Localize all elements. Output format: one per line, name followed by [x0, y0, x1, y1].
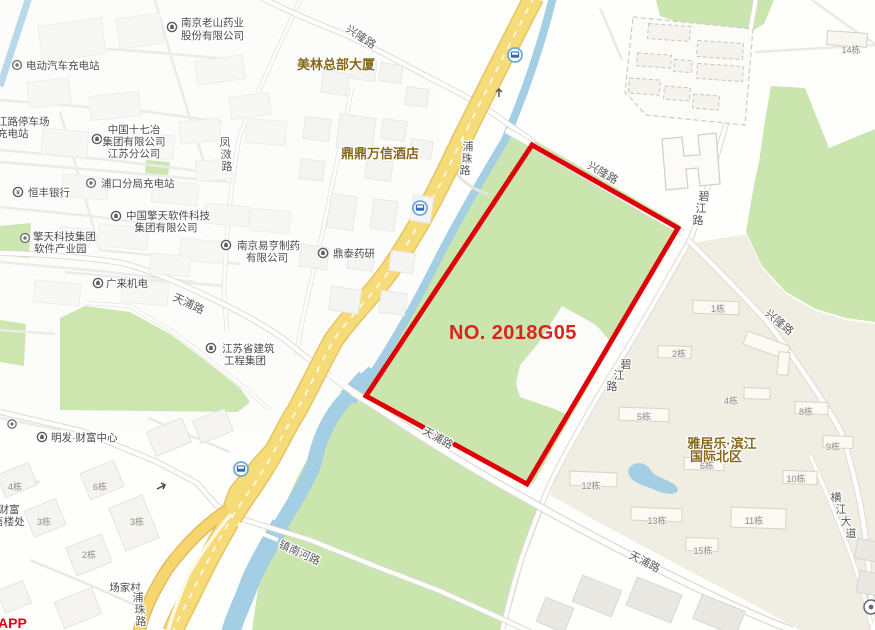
svg-text:浦口分局充电站: 浦口分局充电站 [101, 177, 175, 190]
svg-text:5栋: 5栋 [637, 411, 651, 422]
svg-text:充电站: 充电站 [0, 127, 29, 140]
svg-text:软件产业园: 软件产业园 [34, 242, 87, 255]
svg-text:集团有限公司: 集团有限公司 [135, 221, 198, 234]
svg-text:擎天科技集团: 擎天科技集团 [33, 230, 96, 243]
svg-text:鼎鼎万信酒店: 鼎鼎万信酒店 [341, 146, 419, 161]
svg-text:4栋: 4栋 [724, 395, 738, 406]
svg-text:6栋: 6栋 [700, 460, 714, 471]
svg-text:1栋: 1栋 [711, 303, 725, 314]
svg-text:江路停车场: 江路停车场 [0, 115, 50, 128]
svg-text:江苏省建筑: 江苏省建筑 [222, 342, 275, 355]
svg-text:15栋: 15栋 [693, 545, 712, 556]
svg-text:13栋: 13栋 [647, 515, 666, 526]
svg-text:售楼处: 售楼处 [0, 515, 25, 528]
svg-text:有限公司: 有限公司 [246, 251, 288, 264]
svg-text:9栋: 9栋 [826, 441, 840, 452]
svg-text:美林总部大厦: 美林总部大厦 [297, 57, 376, 72]
svg-text:3栋: 3栋 [37, 516, 51, 527]
svg-text:恒丰银行: 恒丰银行 [28, 186, 70, 199]
svg-text:3栋: 3栋 [130, 516, 144, 527]
svg-text:广来机电: 广来机电 [106, 277, 148, 290]
svg-text:6栋: 6栋 [93, 481, 107, 492]
svg-text:2栋: 2栋 [672, 348, 686, 359]
svg-text:11栋: 11栋 [745, 515, 763, 526]
svg-text:4栋: 4栋 [8, 481, 22, 492]
svg-text:国际北区: 国际北区 [690, 449, 742, 464]
svg-text:8栋: 8栋 [799, 406, 813, 417]
svg-text:鼎泰药研: 鼎泰药研 [333, 247, 375, 260]
svg-text:集团有限公司: 集团有限公司 [103, 135, 166, 148]
svg-text:工程集团: 工程集团 [224, 354, 266, 367]
svg-text:2栋: 2栋 [82, 549, 96, 560]
svg-text:电动汽车充电站: 电动汽车充电站 [26, 59, 100, 72]
svg-text:14栋: 14栋 [841, 44, 860, 55]
svg-text:股份有限公司: 股份有限公司 [181, 29, 244, 42]
svg-text:财富: 财富 [0, 503, 20, 516]
svg-text:12栋: 12栋 [581, 480, 600, 491]
svg-text:江苏分公司: 江苏分公司 [108, 147, 161, 160]
svg-text:南京老山药业: 南京老山药业 [181, 16, 244, 29]
svg-text:APP: APP [0, 615, 27, 630]
svg-text:NO. 2018G05: NO. 2018G05 [449, 322, 577, 344]
svg-text:中国擎天软件科技: 中国擎天软件科技 [126, 209, 210, 222]
svg-text:10栋: 10栋 [786, 473, 805, 484]
svg-text:中国十七冶: 中国十七冶 [108, 123, 161, 136]
svg-text:¥: ¥ [16, 190, 20, 197]
svg-text:南京易亨制药: 南京易亨制药 [237, 239, 300, 252]
svg-text:明发·财富中心: 明发·财富中心 [51, 431, 118, 444]
